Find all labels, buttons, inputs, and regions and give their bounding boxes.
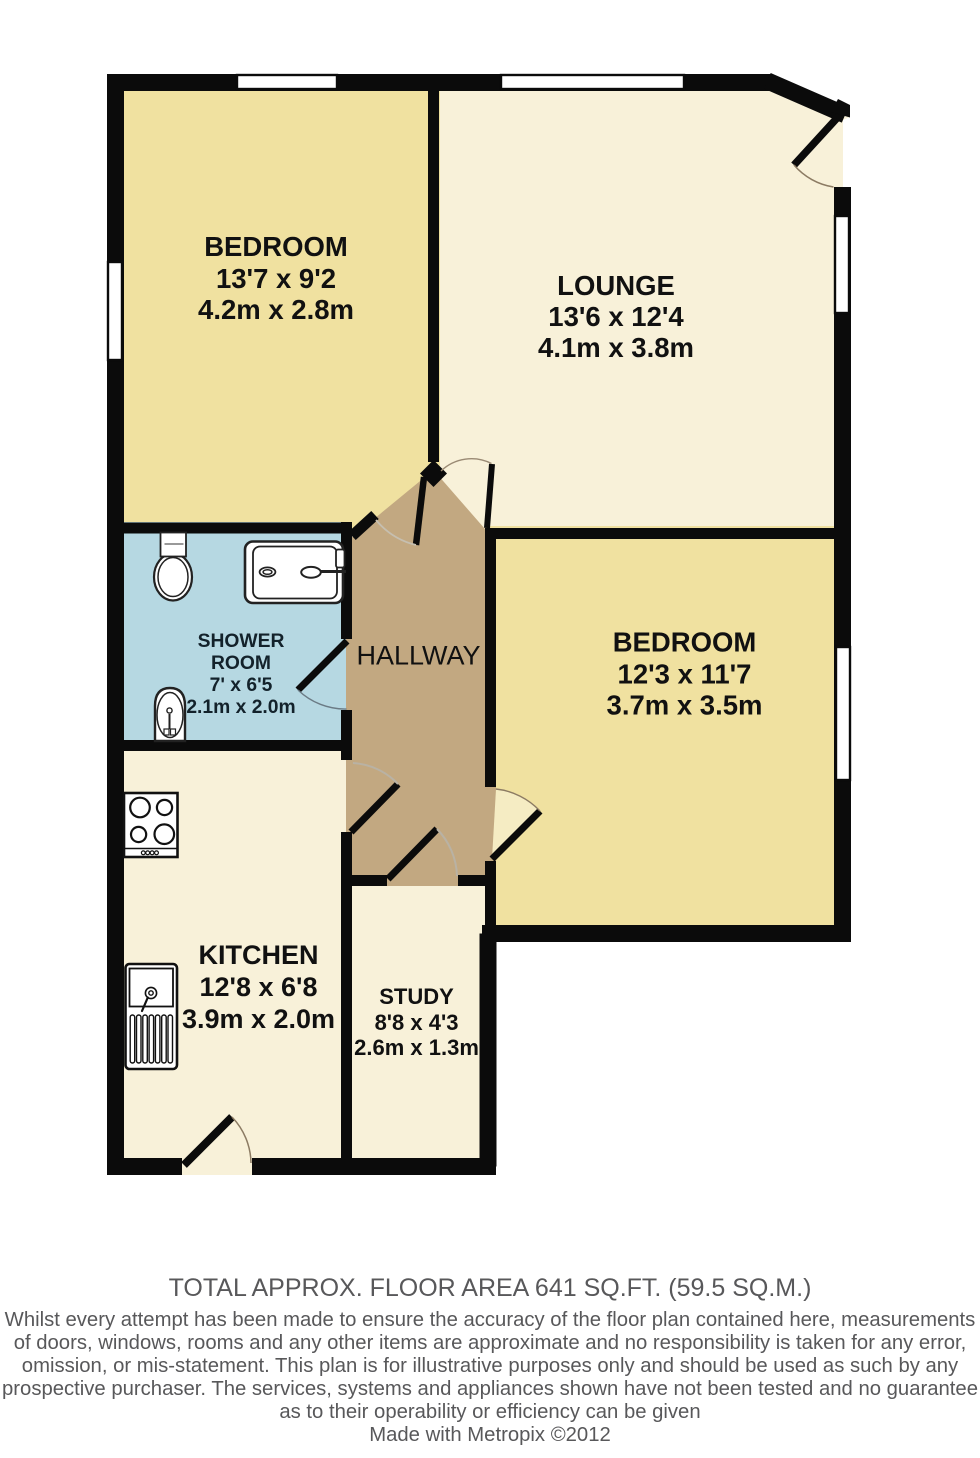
svg-text:3.7m x 3.5m: 3.7m x 3.5m: [607, 690, 763, 721]
svg-text:BEDROOM: BEDROOM: [613, 627, 757, 658]
svg-text:4.2m x 2.8m: 4.2m x 2.8m: [198, 294, 354, 325]
svg-text:3.9m x 2.0m: 3.9m x 2.0m: [182, 1004, 335, 1034]
svg-text:SHOWER: SHOWER: [198, 631, 285, 652]
svg-text:4.1m x 3.8m: 4.1m x 3.8m: [538, 332, 694, 363]
svg-text:13'6 x 12'4: 13'6 x 12'4: [548, 301, 684, 332]
svg-text:Whilst every attempt has been: Whilst every attempt has been made to en…: [5, 1309, 976, 1331]
svg-text:HALLWAY: HALLWAY: [356, 641, 480, 671]
svg-text:12'8 x 6'8: 12'8 x 6'8: [200, 972, 318, 1002]
svg-text:STUDY: STUDY: [379, 984, 454, 1009]
svg-text:of doors, windows, rooms and a: of doors, windows, rooms and any other i…: [14, 1332, 967, 1354]
svg-text:7' x 6'5: 7' x 6'5: [210, 675, 273, 696]
svg-text:omission, or mis-statement. Th: omission, or mis-statement. This plan is…: [22, 1355, 959, 1377]
svg-text:LOUNGE: LOUNGE: [557, 270, 675, 301]
svg-text:prospective purchaser. The ser: prospective purchaser. The services, sys…: [2, 1378, 978, 1400]
svg-text:ROOM: ROOM: [211, 653, 271, 674]
svg-text:2.6m x 1.3m: 2.6m x 1.3m: [354, 1035, 479, 1060]
svg-text:12'3 x 11'7: 12'3 x 11'7: [618, 659, 752, 690]
svg-text:8'8 x 4'3: 8'8 x 4'3: [375, 1010, 459, 1035]
svg-text:Made with Metropix ©2012: Made with Metropix ©2012: [369, 1424, 611, 1446]
svg-text:2.1m x 2.0m: 2.1m x 2.0m: [186, 697, 295, 718]
svg-text:TOTAL APPROX. FLOOR AREA 641 S: TOTAL APPROX. FLOOR AREA 641 SQ.FT. (59.…: [169, 1274, 812, 1302]
svg-text:13'7 x 9'2: 13'7 x 9'2: [216, 263, 336, 294]
svg-text:as to their operability or eff: as to their operability or efficiency ca…: [279, 1401, 700, 1423]
svg-text:KITCHEN: KITCHEN: [199, 940, 319, 970]
svg-text:BEDROOM: BEDROOM: [204, 231, 348, 262]
